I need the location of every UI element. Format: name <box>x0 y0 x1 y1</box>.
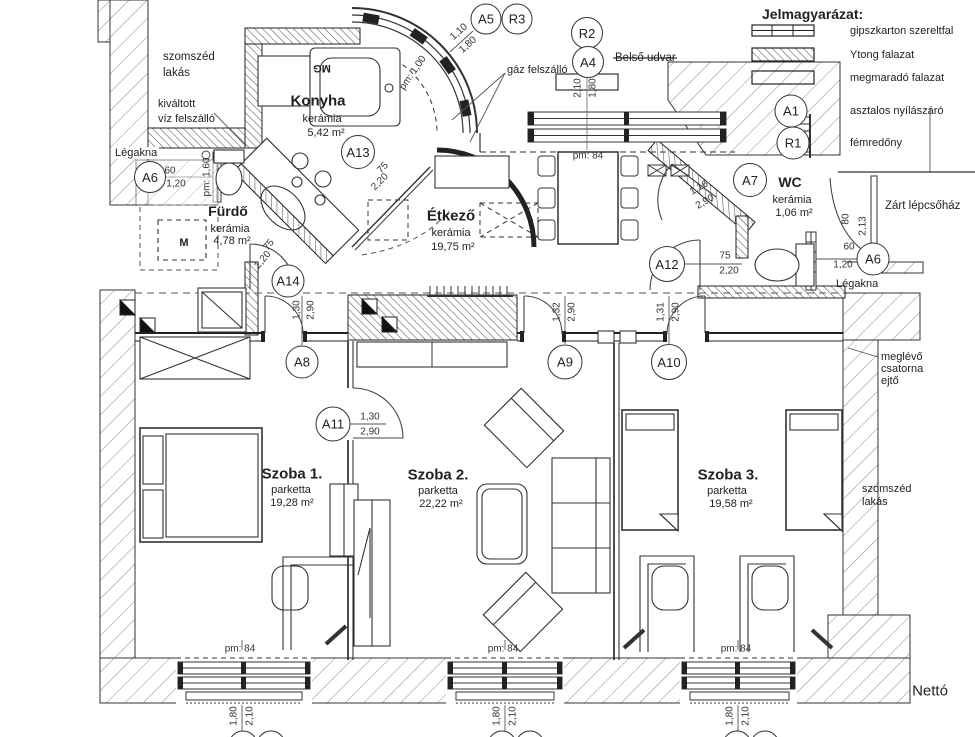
marker-r1-legend: R1 <box>777 127 810 160</box>
annotation-gaz-felszallo: gáz felszálló <box>507 64 568 76</box>
legend-item-label: Ytong falazat <box>850 49 914 61</box>
dim-window-bottom: 1,80 <box>229 706 240 725</box>
armchair2 <box>483 572 562 651</box>
marker-a9: A9 <box>548 345 583 380</box>
room-area-wc: 1,06 m² <box>775 207 812 219</box>
dim-window-bottom: 2,10 <box>245 706 256 725</box>
marker-a4: A4 <box>572 46 604 78</box>
marker-a11: A11 <box>316 407 351 442</box>
dim-a10: 2,90 <box>671 302 682 321</box>
szoba1-furniture <box>140 337 358 650</box>
washing-machine-mg-label: MG <box>313 62 331 74</box>
annotation-legakna-right: Légakna <box>836 278 878 290</box>
room-material-wc: kerámia <box>772 194 811 206</box>
room-material-szoba1: parketta <box>271 484 311 496</box>
marker-r2: R2 <box>571 17 603 49</box>
room-area-furdo: 4,78 m² <box>213 235 250 247</box>
wc-fixtures <box>755 244 814 286</box>
room-material-konyha: kerámia <box>302 113 341 125</box>
lamp <box>326 626 346 644</box>
legend-item-label: asztalos nyílászáró <box>850 105 944 117</box>
bed1 <box>622 410 678 531</box>
annotation-szomszed-lakas: lakás <box>163 67 190 79</box>
bed2 <box>786 410 842 531</box>
room-name-etkezo: Étkező <box>427 208 475 225</box>
szoba3-furniture <box>622 410 842 652</box>
dim-sill-84: pm: 84 <box>721 644 752 655</box>
dim-a11: 2,90 <box>360 427 379 438</box>
dim-sill-84: pm: 84 <box>488 644 519 655</box>
marker-a6-left: A6 <box>134 161 166 193</box>
marker-a5: A5 <box>471 4 502 35</box>
gipszkarton-wall-symbol <box>752 25 814 36</box>
room-name-konyha: Konyha <box>290 93 345 110</box>
annotation-meglevo: csatorna <box>881 363 923 375</box>
coffee-table <box>477 484 527 564</box>
window-szoba2 <box>446 650 564 705</box>
annotation-szomszed-lakas: szomszéd <box>163 51 215 63</box>
room-area-szoba2: 22,22 m² <box>419 498 462 510</box>
washing-machine-m-label: M <box>179 237 188 249</box>
dim-a6-left: 60 <box>164 166 175 177</box>
lamp2 <box>624 630 644 648</box>
dining-table <box>558 152 618 244</box>
armchair1 <box>484 388 563 467</box>
bottom-windows <box>176 650 797 737</box>
marker-a6-right: A6 <box>857 243 890 276</box>
legend-item-label: fémredőny <box>850 137 902 149</box>
edge-marker-circles <box>229 731 779 737</box>
annotation-kivaltott: kiváltott <box>158 98 195 110</box>
room-material-szoba3: parketta <box>707 485 747 497</box>
legend-symbols <box>752 25 814 84</box>
marker-r3: R3 <box>502 4 533 35</box>
wardrobe-x <box>140 337 250 379</box>
dim-a4: 1,80 <box>588 78 599 97</box>
dim-a12: 75 <box>719 251 730 262</box>
dim-window-bottom: 2,10 <box>508 706 519 725</box>
marker-a1-legend: A1 <box>775 95 808 128</box>
shower <box>198 288 246 332</box>
window-szoba1 <box>176 650 312 705</box>
dim-sill-160: pm: 1,60 <box>202 158 213 197</box>
dim-a8: 1,30 <box>292 300 303 319</box>
legend-item-label: gipszkarton szereltfal <box>850 25 953 37</box>
dim-a9: 2,90 <box>567 302 578 321</box>
legend-item-label: megmaradó falazat <box>850 72 944 84</box>
marker-a8: A8 <box>286 346 319 379</box>
annotation-kivaltott: víz felszálló <box>158 113 215 125</box>
dim-a6-right: 60 <box>843 242 854 253</box>
annotation-meglevo: ejtő <box>881 375 899 387</box>
dim-window-bottom: 1,80 <box>492 706 503 725</box>
dim-sill-84: pm: 84 <box>225 644 256 655</box>
toilet-furdo <box>214 150 244 195</box>
desk-chair2 <box>652 566 688 610</box>
dim-a12: 2,20 <box>719 266 738 277</box>
marker-a12: A12 <box>649 246 685 282</box>
room-area-szoba3: 19,58 m² <box>709 498 752 510</box>
annotation-zart-lepcsohaz: Zárt lépcsőház <box>885 200 960 212</box>
room-area-szoba1: 19,28 m² <box>270 497 313 509</box>
cabinet <box>435 156 509 188</box>
marker-a7: A7 <box>733 163 767 197</box>
annotation-szomszed-right: szomszéd <box>862 483 912 495</box>
annotation-szomszed-right: lakás <box>862 496 888 508</box>
dim-a9: 1,32 <box>552 302 563 321</box>
room-name-wc: WC <box>778 174 801 190</box>
szoba2-furniture <box>354 388 610 651</box>
desk-chair3 <box>752 566 788 610</box>
floor-plan-drawing <box>0 0 975 737</box>
double-bed <box>140 428 262 542</box>
dim-a6-left: 1,20 <box>166 179 185 190</box>
ytong-wall-symbol <box>752 48 814 61</box>
dim-a8: 2,90 <box>306 300 317 319</box>
window-szoba3 <box>680 650 797 705</box>
annotation-legakna-left: Légakna <box>113 147 159 159</box>
dim-window-bottom: 2,10 <box>741 706 752 725</box>
annotation-belso-udvar: Belső udvar <box>615 52 676 64</box>
room-name-szoba1: Szoba 1. <box>262 466 323 483</box>
floor-plan: Jelmagyarázat: gipszkarton szereltfal Yt… <box>0 0 975 737</box>
room-area-etkezo: 19,75 m² <box>431 241 474 253</box>
dim-stair: 80 <box>841 213 852 224</box>
room-name-szoba3: Szoba 3. <box>698 467 759 484</box>
dim-a4: 2,10 <box>573 78 584 97</box>
wardrobe-tall <box>354 500 390 646</box>
room-material-szoba2: parketta <box>418 485 458 497</box>
annotation-meglevo: meglévő <box>881 351 923 363</box>
marker-a13: A13 <box>341 135 375 169</box>
dim-a10: 1,31 <box>656 302 667 321</box>
desk-chair <box>272 566 308 610</box>
room-area-konyha: 5,42 m² <box>307 127 344 139</box>
room-name-szoba2: Szoba 2. <box>408 467 469 484</box>
sofa <box>552 458 610 593</box>
remaining-wall-symbol <box>752 71 814 84</box>
dim-window-bottom: 1,80 <box>725 706 736 725</box>
marker-a14: A14 <box>272 265 305 298</box>
kitchen-fixtures <box>241 48 400 256</box>
room-material-etkezo: kerámia <box>431 227 470 239</box>
dim-a6-right: 1,20 <box>833 260 852 271</box>
marker-a10: A10 <box>651 344 687 380</box>
dim-a11: 1,30 <box>360 412 379 423</box>
dim-sill-84: pm: 84 <box>573 151 604 162</box>
room-material-furdo: kerámia <box>210 223 249 235</box>
dim-stair: 2,13 <box>858 216 869 235</box>
legend-title: Jelmagyarázat: <box>762 6 863 22</box>
room-name-furdo: Fürdő <box>208 203 248 219</box>
annotation-netto: Nettó <box>912 683 948 700</box>
desk1 <box>283 557 358 650</box>
